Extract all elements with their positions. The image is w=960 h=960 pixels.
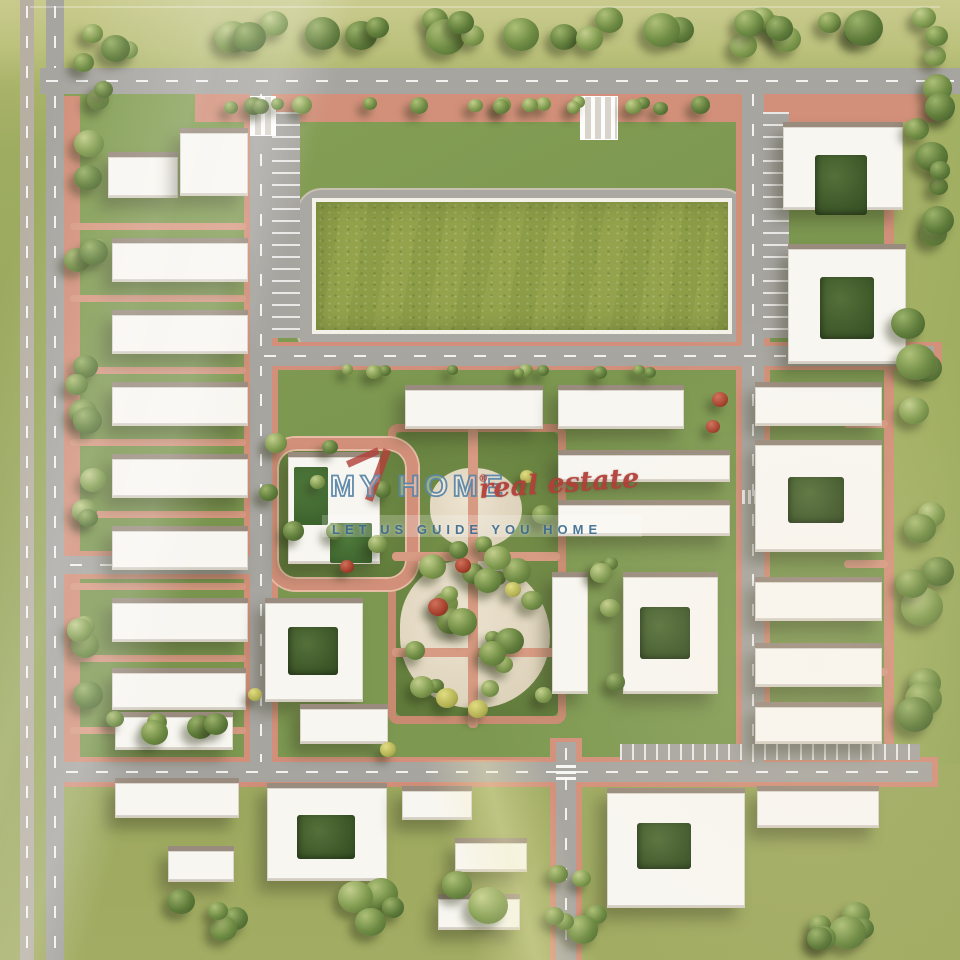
building (180, 128, 248, 196)
tree (80, 239, 108, 265)
building (112, 382, 248, 426)
building (755, 382, 882, 426)
path-stub (70, 223, 246, 230)
tree (514, 368, 524, 377)
tree (67, 618, 93, 642)
tree (448, 11, 474, 34)
building (112, 668, 246, 710)
tree (474, 568, 501, 593)
tree (101, 35, 130, 62)
watermark: MY HOME real estate® LET US GUIDE YOU HO… (330, 448, 640, 544)
tree (259, 484, 277, 501)
brand-tagline: LET US GUIDE YOU HOME (332, 522, 638, 537)
building (112, 238, 248, 282)
tree (468, 887, 508, 924)
frame-glare-line (30, 6, 940, 8)
building (168, 846, 234, 882)
tree (550, 24, 578, 50)
tree (644, 367, 656, 378)
tree (74, 165, 102, 190)
parking-row (272, 112, 300, 338)
tree (766, 16, 793, 40)
courtyard (637, 823, 691, 869)
courtyard (820, 277, 874, 339)
tree (925, 26, 948, 47)
tree (167, 889, 195, 915)
tree (899, 397, 928, 424)
tree (78, 509, 98, 527)
tree (141, 720, 168, 745)
tree (265, 433, 287, 453)
tree (896, 569, 928, 598)
building (607, 788, 745, 908)
tree (576, 26, 604, 52)
tree (468, 99, 483, 113)
tree (503, 18, 538, 50)
podium-roof-garden (312, 198, 732, 334)
tree (447, 365, 457, 374)
tree-accent (455, 558, 471, 573)
tree (536, 97, 552, 111)
courtyard (297, 815, 355, 859)
tree (572, 870, 590, 887)
building (265, 598, 363, 702)
tree-accent (340, 560, 354, 573)
tree (891, 308, 925, 339)
building (300, 704, 388, 744)
tree (410, 97, 428, 114)
tree (925, 93, 955, 120)
master-plan-render: MY HOME real estate® LET US GUIDE YOU HO… (0, 0, 960, 960)
building (623, 572, 718, 694)
tree (479, 641, 506, 666)
tree (233, 22, 266, 52)
tree (521, 591, 542, 611)
building (755, 643, 882, 687)
tree-accent (248, 688, 262, 701)
road (40, 68, 960, 94)
tree (924, 46, 946, 66)
tree (606, 673, 625, 691)
tree (73, 681, 103, 708)
tree (484, 546, 511, 571)
courtyard (815, 155, 867, 215)
tree (310, 475, 325, 488)
tree (73, 407, 103, 434)
building (112, 598, 248, 642)
building (455, 838, 527, 872)
building (108, 152, 178, 198)
tree (590, 563, 612, 583)
tree (366, 17, 389, 38)
courtyard (788, 477, 844, 523)
entrance-gate (580, 96, 618, 140)
parking-row (620, 744, 920, 760)
building (405, 385, 543, 429)
building (755, 702, 882, 744)
tree (567, 101, 581, 114)
path-stub (70, 295, 246, 302)
building (112, 526, 248, 570)
path-stub (70, 655, 246, 662)
courtyard (640, 607, 690, 659)
tree (904, 514, 935, 543)
tree (73, 53, 94, 72)
crosswalk (556, 764, 576, 780)
building (558, 385, 684, 429)
tree (930, 161, 950, 179)
tree (355, 908, 385, 936)
building (115, 778, 239, 818)
courtyard (288, 627, 338, 675)
tree (633, 365, 644, 376)
tree (74, 130, 104, 157)
tree (691, 96, 710, 114)
building (788, 244, 906, 364)
road (20, 0, 34, 960)
tree (442, 871, 472, 899)
tree (210, 916, 237, 941)
tree (522, 98, 538, 112)
tree (905, 118, 929, 140)
tree (80, 468, 106, 492)
tree (807, 927, 832, 950)
tree (896, 344, 936, 380)
tree (818, 12, 841, 33)
tree (493, 99, 509, 114)
tree-accent (380, 742, 396, 757)
tree-accent (505, 582, 521, 597)
building (112, 454, 248, 498)
tree (405, 641, 425, 659)
tree-accent (706, 420, 720, 433)
building (552, 572, 588, 694)
tree (106, 711, 124, 728)
building (402, 786, 472, 820)
building (755, 577, 882, 621)
registered-mark: ® (478, 473, 489, 485)
tree (593, 366, 607, 379)
road (46, 0, 64, 960)
tree-accent (712, 392, 728, 407)
path-stub (844, 560, 888, 568)
tree (653, 102, 667, 115)
building (783, 122, 903, 210)
tree (734, 10, 764, 38)
tree (224, 101, 238, 114)
tree (730, 33, 757, 58)
tree (922, 206, 954, 235)
tree (65, 374, 88, 395)
tree (363, 97, 377, 110)
tree (82, 24, 102, 43)
tree (929, 178, 947, 195)
building (755, 440, 882, 552)
tree (419, 554, 447, 579)
tree (896, 697, 933, 731)
path-stub (70, 439, 246, 446)
tree (535, 687, 552, 703)
building (757, 786, 879, 828)
tree (912, 7, 935, 28)
tree (844, 10, 883, 46)
building (112, 310, 248, 354)
building (267, 783, 387, 881)
tree (204, 713, 228, 735)
tree (305, 17, 340, 49)
tree (253, 99, 269, 114)
tree (625, 99, 641, 114)
tree (382, 897, 404, 917)
path-stub (70, 583, 246, 590)
tree (448, 608, 478, 635)
brand-logo-roof-icon (346, 447, 380, 467)
tree (548, 865, 568, 883)
